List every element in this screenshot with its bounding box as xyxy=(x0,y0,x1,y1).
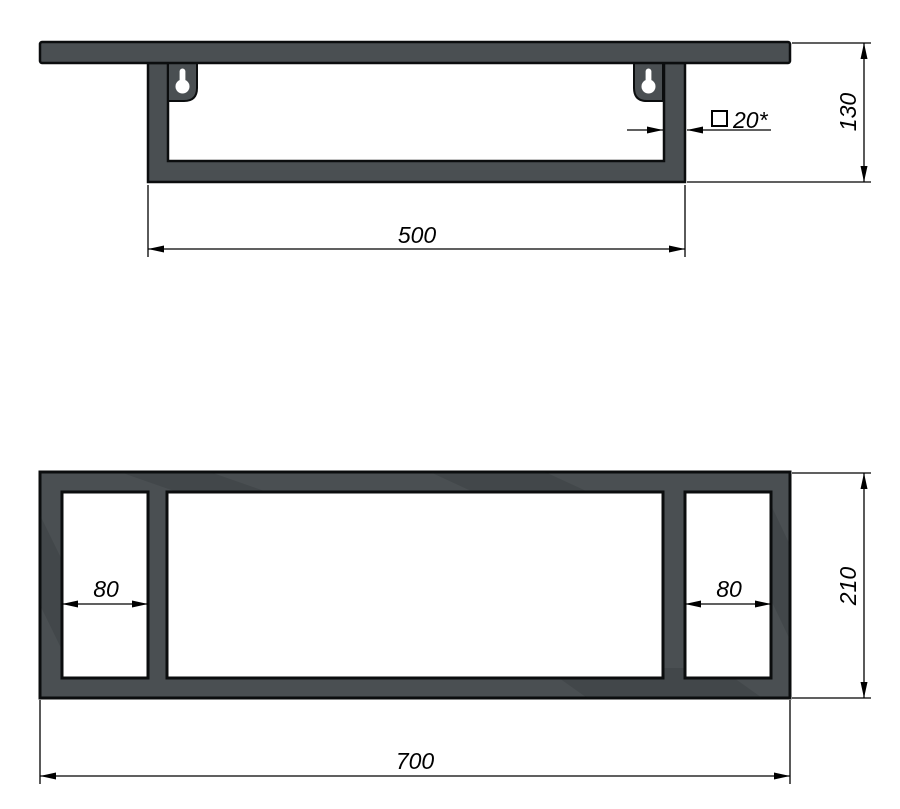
arrowhead-right xyxy=(774,773,790,780)
dimension-500: 500 xyxy=(148,185,685,257)
dimension-210: 210 xyxy=(792,473,871,698)
dim-text-80-right: 80 xyxy=(716,576,742,602)
shelf-top-plate xyxy=(40,42,790,63)
keyhole-bracket-right xyxy=(634,62,663,101)
dim-text-80-left: 80 xyxy=(93,576,119,602)
dimension-tube-20: 20* xyxy=(627,107,771,134)
arrowhead-down xyxy=(861,682,868,698)
shelf-u-frame xyxy=(148,63,685,182)
dim-text-20: 20* xyxy=(732,107,769,133)
keyhole-bracket-left xyxy=(168,62,197,101)
arrowhead-down xyxy=(861,166,868,182)
arrowhead-up xyxy=(861,473,868,489)
arrowhead-left xyxy=(687,127,703,134)
plan-opening-center xyxy=(167,492,663,678)
dim-text-210: 210 xyxy=(835,567,861,607)
arrowhead-left xyxy=(148,246,164,253)
square-section-icon xyxy=(712,111,727,126)
dim-text-700: 700 xyxy=(396,748,435,774)
plan-view: 80 80 210 700 xyxy=(40,472,871,784)
arrowhead-right xyxy=(669,246,685,253)
arrowhead-up xyxy=(861,43,868,59)
technical-drawing-canvas: 500 130 20* xyxy=(0,0,900,809)
front-view: 500 130 20* xyxy=(40,42,871,257)
arrowhead-left xyxy=(40,773,56,780)
dimension-700: 700 xyxy=(40,700,790,784)
dim-text-500: 500 xyxy=(398,222,437,248)
dim-text-130: 130 xyxy=(835,93,861,132)
arrowhead-right xyxy=(647,127,663,134)
